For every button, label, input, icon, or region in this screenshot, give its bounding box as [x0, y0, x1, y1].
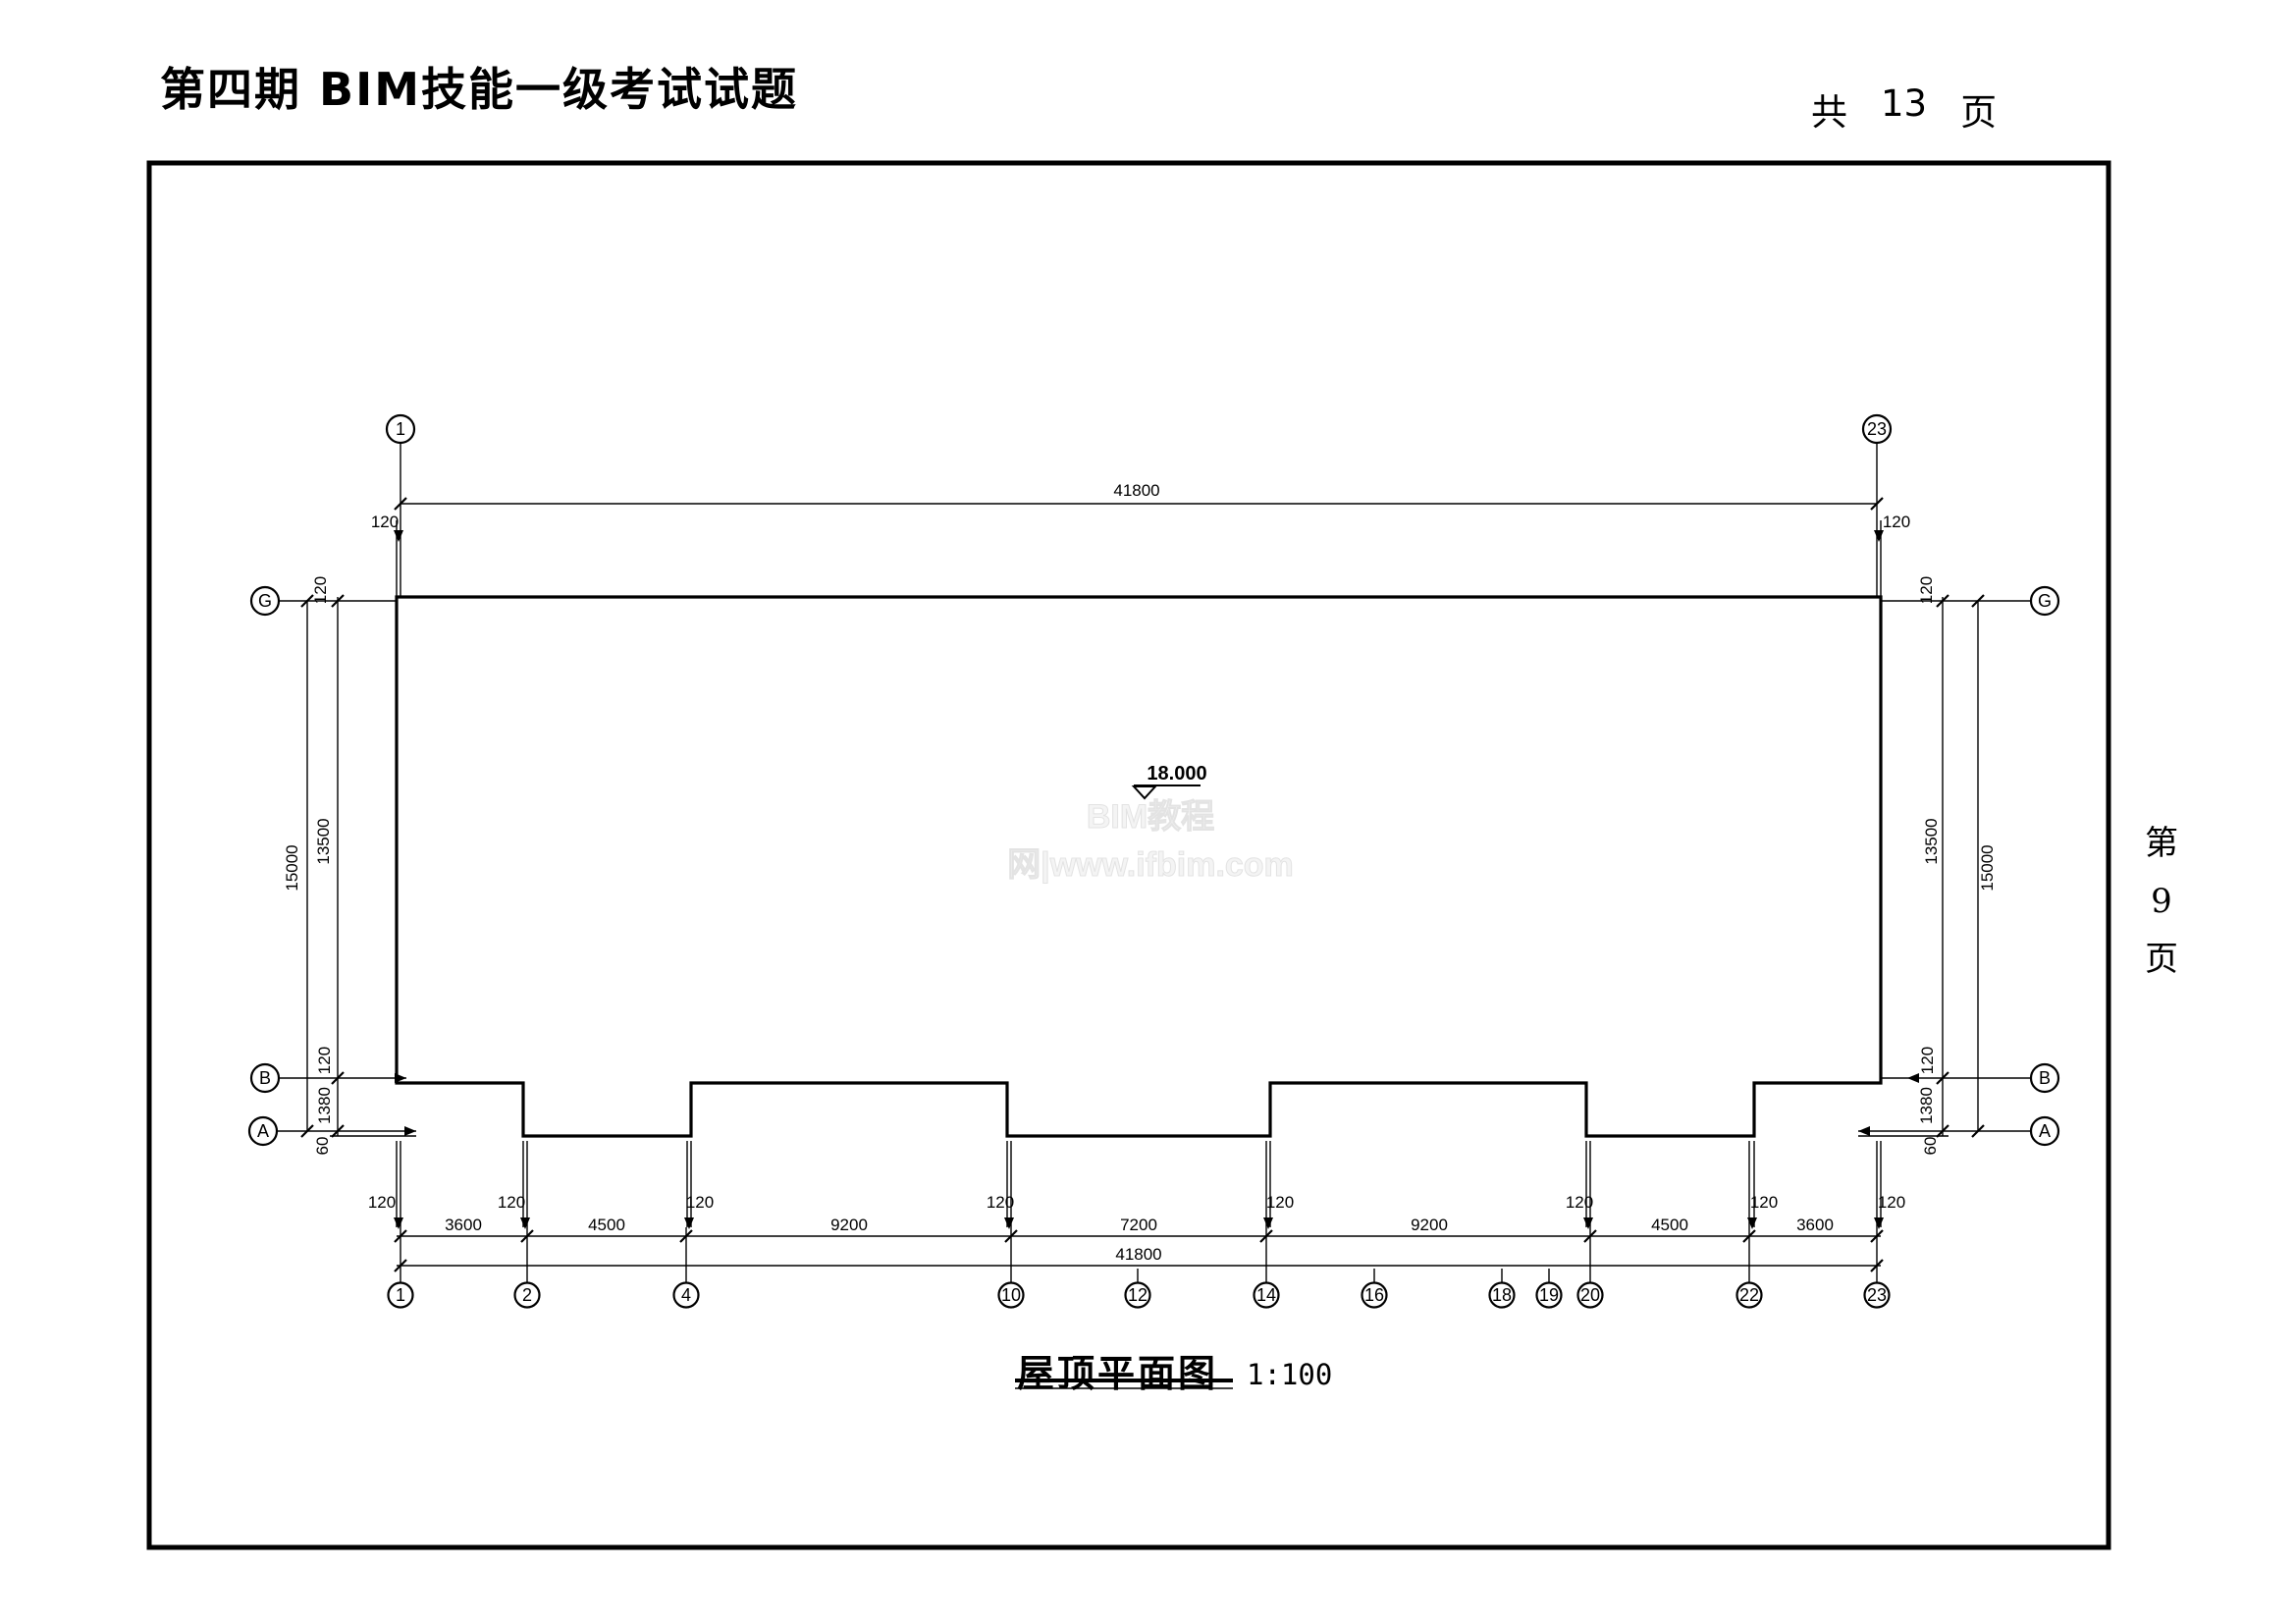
dim-label-120: 120 — [1917, 576, 1936, 604]
dim-label-7200: 7200 — [1120, 1216, 1157, 1234]
dim-label-120: 120 — [498, 1193, 525, 1212]
drawing-frame — [149, 163, 2109, 1547]
dim-label-15000: 15000 — [283, 844, 301, 891]
roof-outline — [397, 597, 1881, 1136]
dim-label-120: 120 — [1566, 1193, 1593, 1212]
grid-bubble-label-23: 23 — [1867, 1285, 1887, 1305]
grid-bubble-label-B: B — [259, 1068, 271, 1088]
grid-bubble-label-2: 2 — [522, 1285, 532, 1305]
roof-plan-drawing: 4180012012015000135001201201380601500013… — [0, 0, 2296, 1623]
dim-label-60: 60 — [1921, 1137, 1940, 1156]
dim-label-4500: 4500 — [1651, 1216, 1688, 1234]
elevation-marker — [1134, 785, 1201, 798]
grid-bubble-label-1: 1 — [396, 1285, 405, 1305]
grid-bubble-label-10: 10 — [1001, 1285, 1021, 1305]
dim-label-1380: 1380 — [1917, 1087, 1936, 1124]
dim-label-3600: 3600 — [1796, 1216, 1834, 1234]
dimension-ticks — [301, 498, 1984, 1271]
grid-bubble-label-14: 14 — [1256, 1285, 1276, 1305]
dim-label-120: 120 — [315, 1047, 334, 1074]
dim-label-120: 120 — [1266, 1193, 1294, 1212]
dim-label-41800: 41800 — [1113, 481, 1159, 500]
grid-bubble-label-22: 22 — [1739, 1285, 1759, 1305]
grid-bubble-label-B: B — [2039, 1068, 2051, 1088]
elevation-triangle-icon — [1134, 786, 1155, 798]
elevation-value: 18.000 — [1147, 763, 1206, 784]
grid-bubble-label-20: 20 — [1580, 1285, 1600, 1305]
dim-label-13500: 13500 — [1922, 818, 1941, 864]
dim-label-120: 120 — [311, 576, 330, 604]
grid-bubble-label-18: 18 — [1492, 1285, 1512, 1305]
grid-bubble-label-1: 1 — [396, 419, 405, 439]
dim-label-3600: 3600 — [445, 1216, 482, 1234]
dim-label-60: 60 — [313, 1137, 332, 1156]
grid-bubble-label-12: 12 — [1128, 1285, 1148, 1305]
dim-label-1380: 1380 — [315, 1087, 334, 1124]
grid-bubble-label-16: 16 — [1364, 1285, 1384, 1305]
dim-label-120: 120 — [1878, 1193, 1905, 1212]
grid-and-dimension-lines — [277, 443, 2031, 1282]
dim-label-120: 120 — [987, 1193, 1014, 1212]
exam-page: 第四期 BIM技能一级考试试题 共 13 页 第 9 页 BIM教程网|www.… — [0, 0, 2296, 1623]
mini-dim-arrows — [394, 530, 1919, 1229]
grid-bubble-label-G: G — [258, 591, 272, 611]
dim-label-120: 120 — [1883, 513, 1910, 531]
dim-label-13500: 13500 — [314, 818, 333, 864]
grid-bubble-label-A: A — [2039, 1121, 2051, 1141]
dim-label-120: 120 — [1750, 1193, 1778, 1212]
dim-label-120: 120 — [686, 1193, 714, 1212]
grid-bubble-label-19: 19 — [1539, 1285, 1559, 1305]
dim-label-4500: 4500 — [588, 1216, 625, 1234]
grid-bubble-label-4: 4 — [681, 1285, 691, 1305]
dim-label-120: 120 — [371, 513, 399, 531]
dim-label-9200: 9200 — [830, 1216, 868, 1234]
dim-label-41800: 41800 — [1115, 1245, 1161, 1264]
grid-bubble-label-23: 23 — [1867, 419, 1887, 439]
grid-bubble-label-G: G — [2038, 591, 2052, 611]
dim-label-120: 120 — [368, 1193, 396, 1212]
dim-label-15000: 15000 — [1978, 844, 1997, 891]
dim-label-120: 120 — [1918, 1047, 1937, 1074]
dim-label-9200: 9200 — [1411, 1216, 1448, 1234]
grid-bubble-label-A: A — [257, 1121, 269, 1141]
